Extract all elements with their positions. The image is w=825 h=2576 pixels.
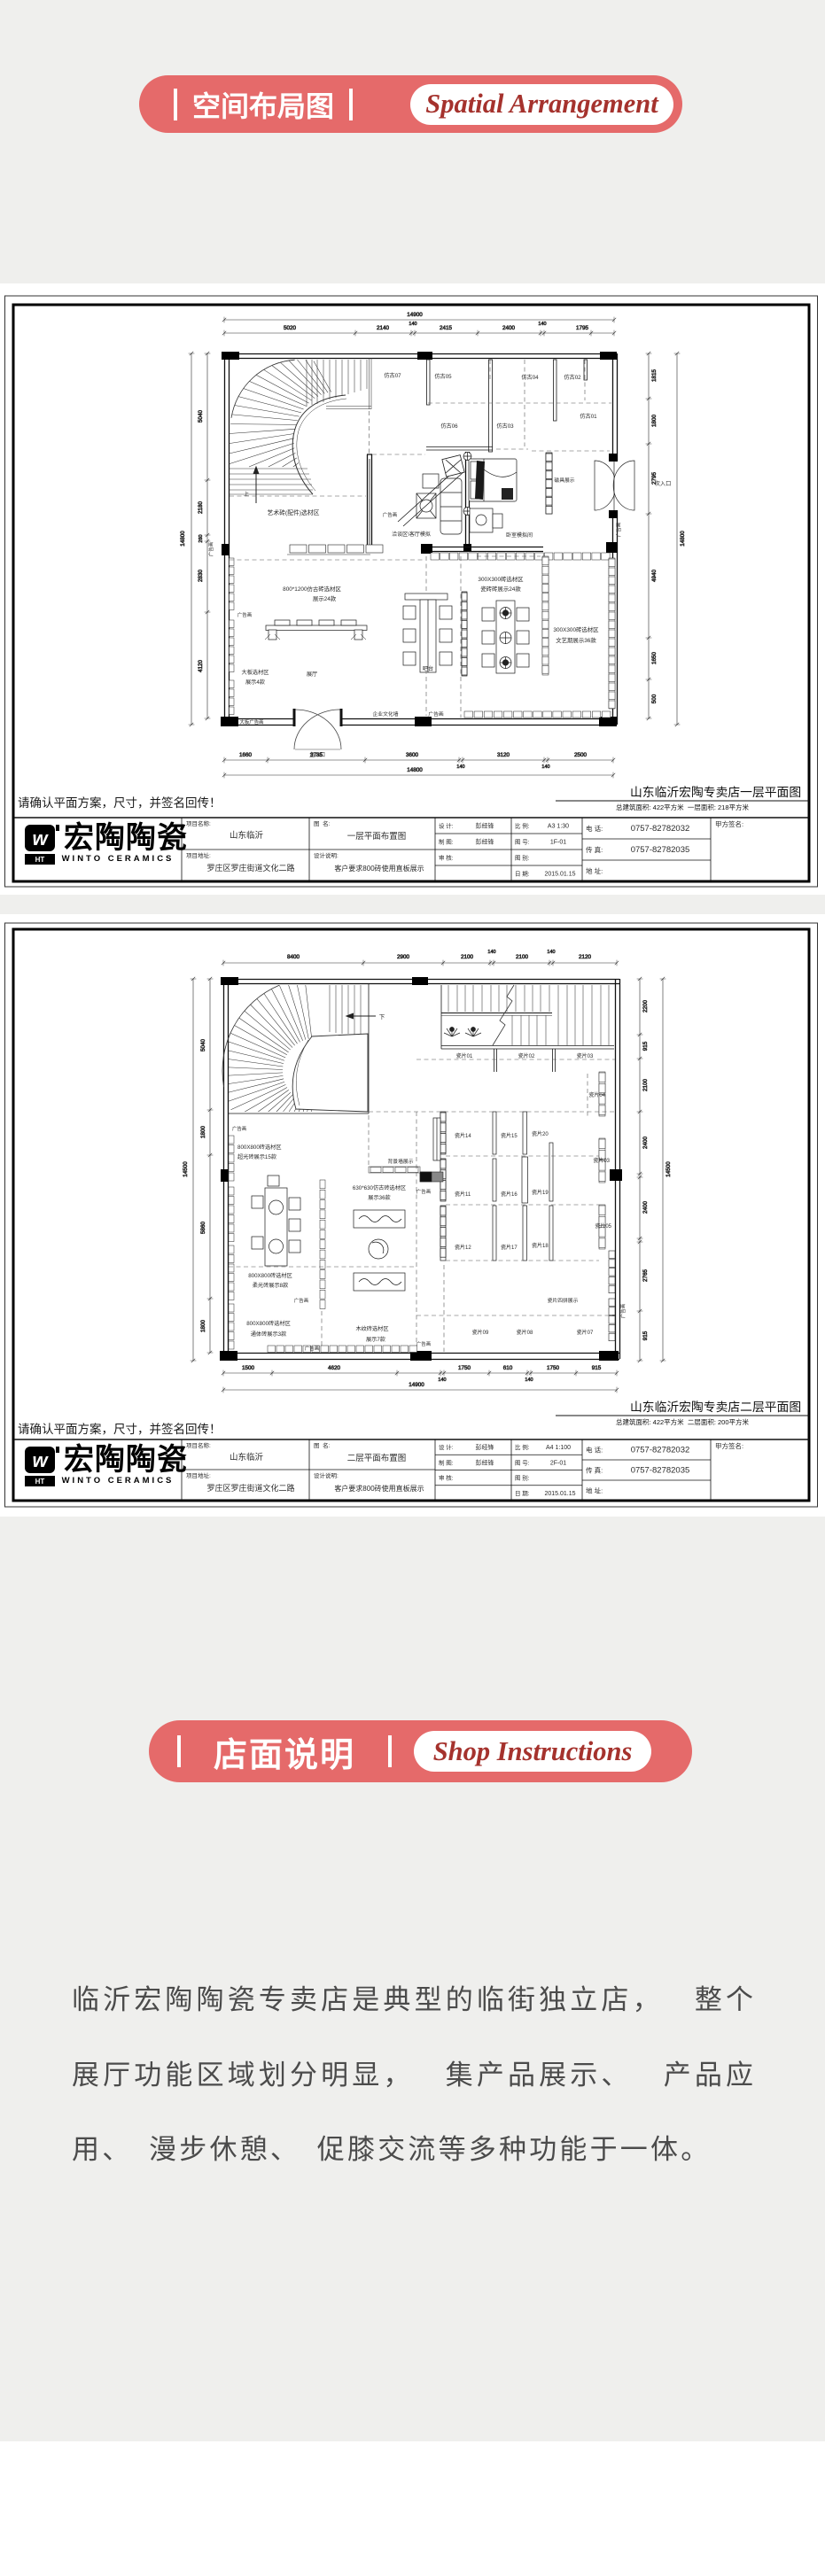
svg-text:2100: 2100 bbox=[642, 1079, 649, 1092]
svg-text:通体砖展示3款: 通体砖展示3款 bbox=[251, 1331, 287, 1338]
svg-text:甲方签名:: 甲方签名: bbox=[715, 819, 743, 828]
svg-text:915: 915 bbox=[592, 1365, 602, 1371]
svg-text:2400: 2400 bbox=[502, 325, 516, 331]
svg-text:广告画: 广告画 bbox=[207, 542, 214, 556]
svg-text:14500: 14500 bbox=[665, 1161, 672, 1177]
svg-text:制 图:: 制 图: bbox=[439, 838, 454, 846]
svg-text:500: 500 bbox=[651, 694, 658, 703]
svg-text:洽谈区\客厅模拟: 洽谈区\客厅模拟 bbox=[392, 531, 431, 538]
svg-text:甲方签名:: 甲方签名: bbox=[715, 1441, 743, 1450]
svg-text:广告画: 广告画 bbox=[615, 523, 622, 537]
svg-text:瓷片11: 瓷片11 bbox=[455, 1191, 471, 1198]
svg-text:4120: 4120 bbox=[198, 660, 204, 673]
svg-text:A3 1:30: A3 1:30 bbox=[548, 824, 569, 830]
svg-text:2100: 2100 bbox=[461, 954, 474, 960]
svg-text:瓷片20: 瓷片20 bbox=[532, 1130, 549, 1137]
svg-text:项目名称:: 项目名称: bbox=[186, 1441, 211, 1449]
svg-text:比 例:: 比 例: bbox=[515, 1443, 530, 1451]
svg-text:展厅: 展厅 bbox=[307, 671, 317, 678]
svg-text:14800: 14800 bbox=[680, 531, 686, 547]
svg-text:图 号:: 图 号: bbox=[515, 1459, 530, 1466]
svg-text:瓷片02: 瓷片02 bbox=[518, 1052, 535, 1059]
svg-text:制 图:: 制 图: bbox=[439, 1458, 454, 1466]
svg-text:260: 260 bbox=[198, 534, 204, 542]
svg-text:主入口: 主入口 bbox=[309, 751, 325, 758]
svg-text:2765: 2765 bbox=[642, 1269, 649, 1283]
svg-text:瓷片18: 瓷片18 bbox=[532, 1242, 549, 1249]
svg-text:800*1200仿古砖选材区: 800*1200仿古砖选材区 bbox=[283, 585, 341, 593]
svg-text:瓷片08: 瓷片08 bbox=[517, 1329, 533, 1336]
svg-text:地 址:: 地 址: bbox=[586, 1486, 603, 1495]
svg-text:彭经锋: 彭经锋 bbox=[476, 1458, 494, 1466]
svg-text:5860: 5860 bbox=[200, 1222, 206, 1235]
svg-text:瓷片19: 瓷片19 bbox=[532, 1189, 549, 1196]
svg-text:次入口: 次入口 bbox=[655, 480, 672, 487]
svg-text:2120: 2120 bbox=[579, 954, 592, 960]
svg-text:0757-82782032: 0757-82782032 bbox=[631, 824, 690, 834]
svg-text:瓷片四拼展示: 瓷片四拼展示 bbox=[548, 1297, 579, 1304]
svg-text:图 别:: 图 别: bbox=[515, 1474, 530, 1482]
svg-text:14900: 14900 bbox=[407, 312, 423, 318]
svg-text:传 真:: 传 真: bbox=[586, 845, 603, 854]
svg-text:1F-01: 1F-01 bbox=[550, 840, 566, 846]
svg-text:1750: 1750 bbox=[547, 1365, 560, 1371]
svg-text:1795: 1795 bbox=[576, 325, 589, 331]
svg-text:电 话:: 电 话: bbox=[586, 1446, 603, 1455]
svg-text:瓷片01: 瓷片01 bbox=[456, 1052, 473, 1059]
svg-text:请确认平面方案，尺寸，并签名回传！: 请确认平面方案，尺寸，并签名回传！ bbox=[18, 1422, 222, 1436]
svg-text:瓷片12: 瓷片12 bbox=[455, 1244, 471, 1251]
svg-text:展示24款: 展示24款 bbox=[313, 594, 337, 602]
svg-text:广告画: 广告画 bbox=[416, 1188, 431, 1195]
svg-text:设计说明:: 设计说明: bbox=[314, 1471, 339, 1479]
svg-text:审 核:: 审 核: bbox=[439, 1474, 454, 1482]
svg-text:审 核:: 审 核: bbox=[439, 854, 454, 862]
svg-text:柔光砖展示8款: 柔光砖展示8款 bbox=[253, 1282, 289, 1289]
svg-text:客户要求800砖使用直板展示: 客户要求800砖使用直板展示 bbox=[334, 1484, 424, 1493]
svg-text:磁具展示: 磁具展示 bbox=[554, 477, 574, 484]
svg-text:项目名称:: 项目名称: bbox=[186, 819, 211, 827]
svg-text:1750: 1750 bbox=[458, 1365, 471, 1371]
svg-text:140: 140 bbox=[438, 1377, 446, 1383]
svg-text:展示7款: 展示7款 bbox=[366, 1336, 385, 1343]
svg-text:日 期:: 日 期: bbox=[515, 871, 530, 878]
svg-text:彭经锋: 彭经锋 bbox=[476, 822, 494, 830]
svg-text:广告画: 广告画 bbox=[232, 1125, 246, 1132]
svg-text:请确认平面方案，尺寸，并签名回传！: 请确认平面方案，尺寸，并签名回传！ bbox=[18, 795, 222, 810]
svg-text:仿古01: 仿古01 bbox=[580, 413, 597, 420]
svg-text:1800: 1800 bbox=[200, 1126, 206, 1139]
svg-text:彭经锋: 彭经锋 bbox=[476, 838, 494, 846]
svg-text:300X300砖选材区: 300X300砖选材区 bbox=[553, 625, 599, 633]
svg-text:300X300砖选材区: 300X300砖选材区 bbox=[478, 575, 524, 583]
svg-text:0757-82782032: 0757-82782032 bbox=[631, 1446, 690, 1455]
svg-text:罗庄区罗庄街道文化二路: 罗庄区罗庄街道文化二路 bbox=[206, 1483, 294, 1493]
svg-text:0757-82782035: 0757-82782035 bbox=[631, 845, 690, 855]
svg-text:HT: HT bbox=[35, 1478, 45, 1486]
svg-text:文艺期展示36款: 文艺期展示36款 bbox=[556, 636, 596, 644]
svg-text:瓷片15: 瓷片15 bbox=[501, 1132, 518, 1139]
svg-text:设计说明:: 设计说明: bbox=[314, 851, 339, 859]
svg-text:企业文化墙: 企业文化墙 bbox=[373, 710, 399, 718]
svg-text:140: 140 bbox=[547, 950, 555, 955]
svg-text:2F-01: 2F-01 bbox=[550, 1460, 566, 1466]
svg-text:项目地址:: 项目地址: bbox=[186, 1471, 211, 1479]
svg-text:二层平面布置图: 二层平面布置图 bbox=[347, 1453, 407, 1463]
svg-text:瓷片04: 瓷片04 bbox=[588, 1091, 605, 1098]
svg-text:2015.01.15: 2015.01.15 bbox=[544, 872, 575, 878]
svg-text:w: w bbox=[32, 827, 49, 850]
svg-text:2180: 2180 bbox=[198, 501, 204, 515]
svg-text:瓷片09: 瓷片09 bbox=[472, 1329, 489, 1336]
svg-text:140: 140 bbox=[487, 950, 495, 955]
svg-text:仿古07: 仿古07 bbox=[384, 372, 401, 379]
svg-text:2100: 2100 bbox=[516, 954, 529, 960]
svg-text:2140: 2140 bbox=[377, 325, 390, 331]
svg-text:比 例:: 比 例: bbox=[515, 822, 530, 830]
svg-text:仿古04: 仿古04 bbox=[521, 374, 539, 381]
svg-text:展示4款: 展示4款 bbox=[245, 679, 265, 686]
svg-text:下: 下 bbox=[379, 1013, 385, 1020]
svg-text:915: 915 bbox=[642, 1041, 649, 1051]
svg-text:0757-82782035: 0757-82782035 bbox=[631, 1466, 690, 1476]
svg-text:HT: HT bbox=[35, 856, 45, 864]
svg-text:传 真:: 传 真: bbox=[586, 1466, 603, 1475]
svg-text:背景墙展示: 背景墙展示 bbox=[388, 1158, 414, 1165]
svg-text:吧台: 吧台 bbox=[423, 665, 433, 672]
svg-text:WINTO CERAMICS: WINTO CERAMICS bbox=[62, 1476, 175, 1486]
svg-text:山东临沂: 山东临沂 bbox=[230, 830, 264, 841]
svg-text:广告画: 广告画 bbox=[383, 511, 397, 518]
svg-text:1800: 1800 bbox=[200, 1320, 206, 1333]
svg-text:广告画: 广告画 bbox=[305, 1345, 319, 1352]
svg-text:广告画: 广告画 bbox=[294, 1297, 308, 1304]
svg-text:2900: 2900 bbox=[397, 954, 410, 960]
svg-text:1815: 1815 bbox=[651, 369, 658, 383]
svg-text:2200: 2200 bbox=[642, 1000, 649, 1013]
svg-text:800X800砖选材区: 800X800砖选材区 bbox=[237, 1144, 282, 1151]
svg-text:地 址:: 地 址: bbox=[586, 866, 603, 875]
svg-text:瓷片16: 瓷片16 bbox=[501, 1191, 518, 1198]
svg-text:广告画: 广告画 bbox=[619, 1304, 627, 1318]
svg-text:仿古05: 仿古05 bbox=[434, 373, 452, 380]
svg-text:瓷片17: 瓷片17 bbox=[501, 1244, 518, 1251]
svg-text:总建筑面积: 422平方米 一层面积: 218平方米: 总建筑面积: 422平方米 一层面积: 218平方米 bbox=[616, 803, 750, 811]
svg-text:日 期:: 日 期: bbox=[515, 1490, 530, 1497]
svg-text:瓷片05: 瓷片05 bbox=[595, 1222, 611, 1230]
svg-text:广告画: 广告画 bbox=[416, 1340, 431, 1347]
svg-text:1500: 1500 bbox=[242, 1365, 255, 1371]
svg-text:上: 上 bbox=[244, 491, 249, 498]
svg-text:瓷片07: 瓷片07 bbox=[577, 1329, 594, 1336]
svg-text:图 别:: 图 别: bbox=[515, 854, 530, 862]
svg-text:客户要求800砖使用直板展示: 客户要求800砖使用直板展示 bbox=[334, 864, 424, 873]
svg-text:仿古02: 仿古02 bbox=[564, 374, 581, 381]
svg-text:大板广告画: 大板广告画 bbox=[240, 718, 264, 725]
svg-text:610: 610 bbox=[503, 1365, 513, 1371]
svg-text:14500: 14500 bbox=[183, 1161, 189, 1177]
svg-text:w: w bbox=[32, 1449, 49, 1471]
svg-text:仿古06: 仿古06 bbox=[440, 423, 458, 430]
svg-text:2015.01.15: 2015.01.15 bbox=[544, 1491, 575, 1497]
svg-text:14800: 14800 bbox=[180, 531, 186, 547]
svg-text:超光砖展示15款: 超光砖展示15款 bbox=[237, 1153, 276, 1160]
svg-text:图 名:: 图 名: bbox=[314, 819, 331, 827]
svg-text:5020: 5020 bbox=[284, 325, 297, 331]
svg-text:图 号:: 图 号: bbox=[515, 839, 530, 846]
svg-text:瓷砖砖展示24款: 瓷砖砖展示24款 bbox=[480, 585, 521, 593]
svg-text:艺术砖(配件)选材区: 艺术砖(配件)选材区 bbox=[268, 508, 320, 516]
svg-text:仿古03: 仿古03 bbox=[496, 423, 514, 430]
svg-text:140: 140 bbox=[541, 764, 549, 770]
svg-text:设 计:: 设 计: bbox=[439, 822, 454, 830]
svg-text:广告画: 广告画 bbox=[428, 710, 444, 718]
svg-text:彭经锋: 彭经锋 bbox=[476, 1443, 494, 1451]
svg-text:项目地址:: 项目地址: bbox=[186, 851, 211, 859]
svg-text:设 计:: 设 计: bbox=[439, 1443, 454, 1451]
svg-text:展示36款: 展示36款 bbox=[368, 1194, 390, 1201]
svg-text:14800: 14800 bbox=[407, 767, 423, 773]
svg-text:2500: 2500 bbox=[574, 752, 588, 758]
svg-text:木纹砖选材区: 木纹砖选材区 bbox=[355, 1325, 388, 1332]
svg-text:WINTO CERAMICS: WINTO CERAMICS bbox=[62, 854, 175, 864]
svg-text:4940: 4940 bbox=[651, 570, 658, 583]
svg-text:大板选材区: 大板选材区 bbox=[242, 669, 269, 676]
svg-text:1650: 1650 bbox=[651, 652, 658, 665]
svg-text:4620: 4620 bbox=[328, 1365, 341, 1371]
svg-text:山东临沂宏陶专卖店二层平面图: 山东临沂宏陶专卖店二层平面图 bbox=[630, 1401, 801, 1414]
svg-text:630*630仿古砖选材区: 630*630仿古砖选材区 bbox=[353, 1184, 406, 1191]
svg-text:1660: 1660 bbox=[239, 752, 253, 758]
svg-text:5040: 5040 bbox=[200, 1039, 206, 1052]
svg-text:卧室模拟间: 卧室模拟间 bbox=[506, 531, 533, 539]
svg-text:宏陶陶瓷: 宏陶陶瓷 bbox=[64, 820, 188, 855]
svg-text:2830: 2830 bbox=[198, 570, 204, 583]
svg-text:915: 915 bbox=[642, 1331, 649, 1340]
svg-text:电 话:: 电 话: bbox=[586, 824, 603, 833]
svg-text:山东临沂宏陶专卖店一层平面图: 山东临沂宏陶专卖店一层平面图 bbox=[630, 786, 801, 799]
svg-text:140: 140 bbox=[538, 322, 546, 327]
svg-text:1800: 1800 bbox=[651, 415, 658, 428]
svg-text:3600: 3600 bbox=[406, 752, 419, 758]
svg-text:广告画: 广告画 bbox=[237, 611, 252, 618]
svg-text:宏陶陶瓷: 宏陶陶瓷 bbox=[64, 1442, 188, 1477]
svg-text:2415: 2415 bbox=[440, 325, 453, 331]
svg-text:图 名:: 图 名: bbox=[314, 1441, 331, 1449]
svg-text:罗庄区罗庄街道文化二路: 罗庄区罗庄街道文化二路 bbox=[206, 863, 294, 873]
svg-text:总建筑面积: 422平方米 二层面积: 200平方米: 总建筑面积: 422平方米 二层面积: 200平方米 bbox=[616, 1417, 750, 1426]
svg-text:3120: 3120 bbox=[497, 752, 510, 758]
svg-text:800X800砖选材区: 800X800砖选材区 bbox=[246, 1320, 291, 1327]
svg-text:山东临沂: 山东临沂 bbox=[230, 1452, 264, 1463]
svg-text:2400: 2400 bbox=[642, 1137, 649, 1150]
svg-text:800X800砖选材区: 800X800砖选材区 bbox=[248, 1272, 292, 1279]
svg-text:140: 140 bbox=[409, 322, 416, 327]
svg-text:瓷片14: 瓷片14 bbox=[455, 1132, 471, 1139]
svg-text:5040: 5040 bbox=[198, 410, 204, 423]
svg-text:8400: 8400 bbox=[287, 954, 300, 960]
svg-text:140: 140 bbox=[525, 1377, 533, 1383]
svg-text:瓷片03: 瓷片03 bbox=[577, 1052, 594, 1059]
svg-text:140: 140 bbox=[456, 764, 464, 770]
svg-text:14900: 14900 bbox=[409, 1382, 424, 1388]
svg-text:一层平面布置图: 一层平面布置图 bbox=[347, 831, 407, 842]
svg-text:A4 1:100: A4 1:100 bbox=[546, 1445, 571, 1451]
svg-text:2400: 2400 bbox=[642, 1201, 649, 1214]
svg-text:瓷片03: 瓷片03 bbox=[593, 1157, 610, 1164]
